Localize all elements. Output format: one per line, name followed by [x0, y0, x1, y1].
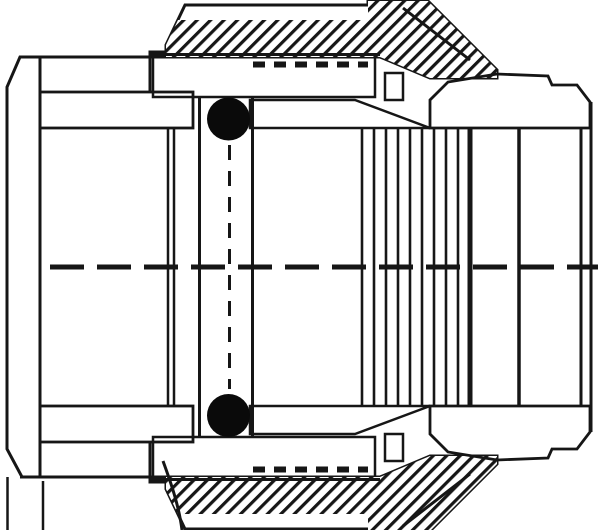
cap-left-wall [7, 57, 40, 477]
clearance-gap-top [385, 73, 403, 100]
o-ring-top-section [207, 98, 250, 141]
thrust-washer-band-bottom [250, 406, 430, 434]
male-end-wall-top [430, 74, 590, 128]
technical-drawing [0, 0, 600, 530]
male-end-wall-bottom [430, 406, 590, 460]
nut-top-hatch [166, 1, 497, 78]
drawing-canvas [0, 0, 600, 530]
clearance-gap-bottom [385, 434, 403, 461]
o-ring-bottom-section [207, 394, 250, 437]
thrust-washer-band-top [250, 100, 430, 128]
end-cap-socket [7, 57, 193, 530]
